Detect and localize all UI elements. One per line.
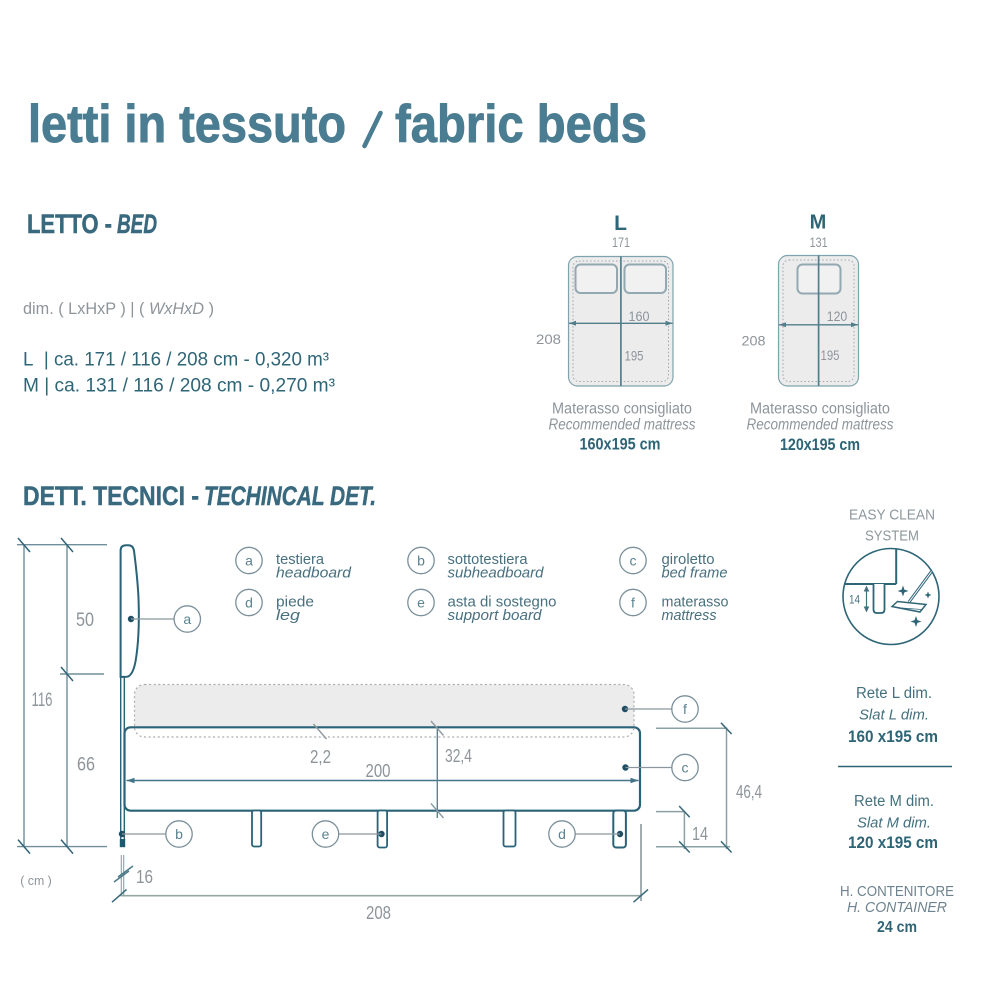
- svg-text:b: b: [175, 826, 183, 842]
- svg-text:mattress: mattress: [662, 607, 717, 624]
- svg-text:Materasso consigliato: Materasso consigliato: [552, 401, 692, 418]
- svg-text:fabric beds: fabric beds: [395, 95, 647, 154]
- svg-text:e: e: [322, 826, 330, 842]
- svg-text:subheadboard: subheadboard: [448, 565, 545, 582]
- svg-text:a: a: [245, 553, 253, 569]
- svg-text:( cm ): ( cm ): [20, 874, 52, 888]
- svg-text:Slat M dim.: Slat M dim.: [857, 815, 931, 832]
- svg-text:H. CONTAINER: H. CONTAINER: [847, 899, 947, 916]
- svg-text:160: 160: [629, 308, 650, 324]
- svg-text:Rete L dim.: Rete L dim.: [856, 685, 932, 702]
- svg-text:32,4: 32,4: [445, 746, 472, 766]
- svg-text:f: f: [683, 701, 687, 717]
- svg-text:208: 208: [742, 333, 766, 349]
- svg-text:208: 208: [366, 902, 391, 923]
- svg-text:SYSTEM: SYSTEM: [865, 528, 919, 545]
- svg-text:171: 171: [612, 234, 630, 250]
- svg-text:16: 16: [136, 867, 153, 887]
- svg-text:131: 131: [810, 234, 828, 250]
- svg-text:c: c: [682, 760, 689, 776]
- svg-text:DETT. TECNICI -: DETT. TECNICI -: [23, 481, 199, 511]
- svg-text:LETTO -: LETTO -: [27, 209, 112, 239]
- svg-text:headboard: headboard: [276, 565, 352, 582]
- svg-text:66: 66: [77, 755, 95, 776]
- svg-text:195: 195: [821, 347, 840, 363]
- svg-text:Recommended mattress: Recommended mattress: [747, 417, 894, 434]
- svg-text:letti in tessuto: letti in tessuto: [28, 95, 346, 154]
- svg-text:EASY CLEAN: EASY CLEAN: [849, 507, 935, 524]
- svg-text:Materasso consigliato: Materasso consigliato: [750, 401, 890, 418]
- svg-text:14: 14: [692, 824, 708, 844]
- svg-text:160x195 cm: 160x195 cm: [580, 435, 661, 454]
- svg-text:195: 195: [625, 348, 644, 364]
- svg-text:Slat L dim.: Slat L dim.: [859, 707, 929, 724]
- svg-text:bed frame: bed frame: [662, 565, 728, 582]
- svg-text:f: f: [631, 595, 635, 611]
- svg-text:208: 208: [536, 331, 561, 347]
- svg-text:Rete M dim.: Rete M dim.: [854, 793, 934, 810]
- svg-text:120: 120: [827, 308, 848, 324]
- svg-text:160 x195 cm: 160 x195 cm: [848, 727, 938, 746]
- svg-text:c: c: [630, 553, 637, 569]
- svg-text:support board: support board: [448, 607, 543, 624]
- svg-text:M: M: [810, 212, 827, 234]
- svg-text:H. CONTENITORE: H. CONTENITORE: [840, 883, 954, 900]
- svg-text:d: d: [245, 595, 253, 611]
- svg-text:e: e: [417, 595, 425, 611]
- svg-text:b: b: [417, 553, 425, 569]
- svg-text:2,2: 2,2: [310, 747, 331, 767]
- svg-text:24 cm: 24 cm: [877, 919, 917, 936]
- svg-text:a: a: [183, 611, 191, 627]
- svg-text:BED: BED: [117, 209, 157, 239]
- svg-text:M | ca. 131 / 116 / 208 cm - 0: M | ca. 131 / 116 / 208 cm - 0,270 m³: [23, 375, 335, 397]
- svg-text:50: 50: [76, 610, 94, 631]
- svg-text:Recommended mattress: Recommended mattress: [549, 417, 696, 434]
- svg-text:120x195 cm: 120x195 cm: [780, 435, 860, 454]
- svg-text:46,4: 46,4: [736, 782, 762, 802]
- svg-text:L | ca. 171 / 116 / 208 cm -: L | ca. 171 / 116 / 208 cm - 0,320 m³: [23, 349, 329, 371]
- svg-text:leg: leg: [276, 607, 301, 624]
- svg-text:d: d: [558, 826, 566, 842]
- svg-text:TECHINCAL DET.: TECHINCAL DET.: [204, 481, 376, 511]
- svg-text:120 x195 cm: 120 x195 cm: [848, 833, 938, 852]
- svg-text:L: L: [614, 212, 627, 235]
- svg-text:14: 14: [849, 593, 860, 607]
- svg-text:116: 116: [32, 690, 53, 711]
- svg-text:200: 200: [366, 761, 391, 781]
- svg-text:dim. ( LxHxP ) | ( WxHxD ): dim. ( LxHxP ) | ( WxHxD ): [23, 299, 214, 318]
